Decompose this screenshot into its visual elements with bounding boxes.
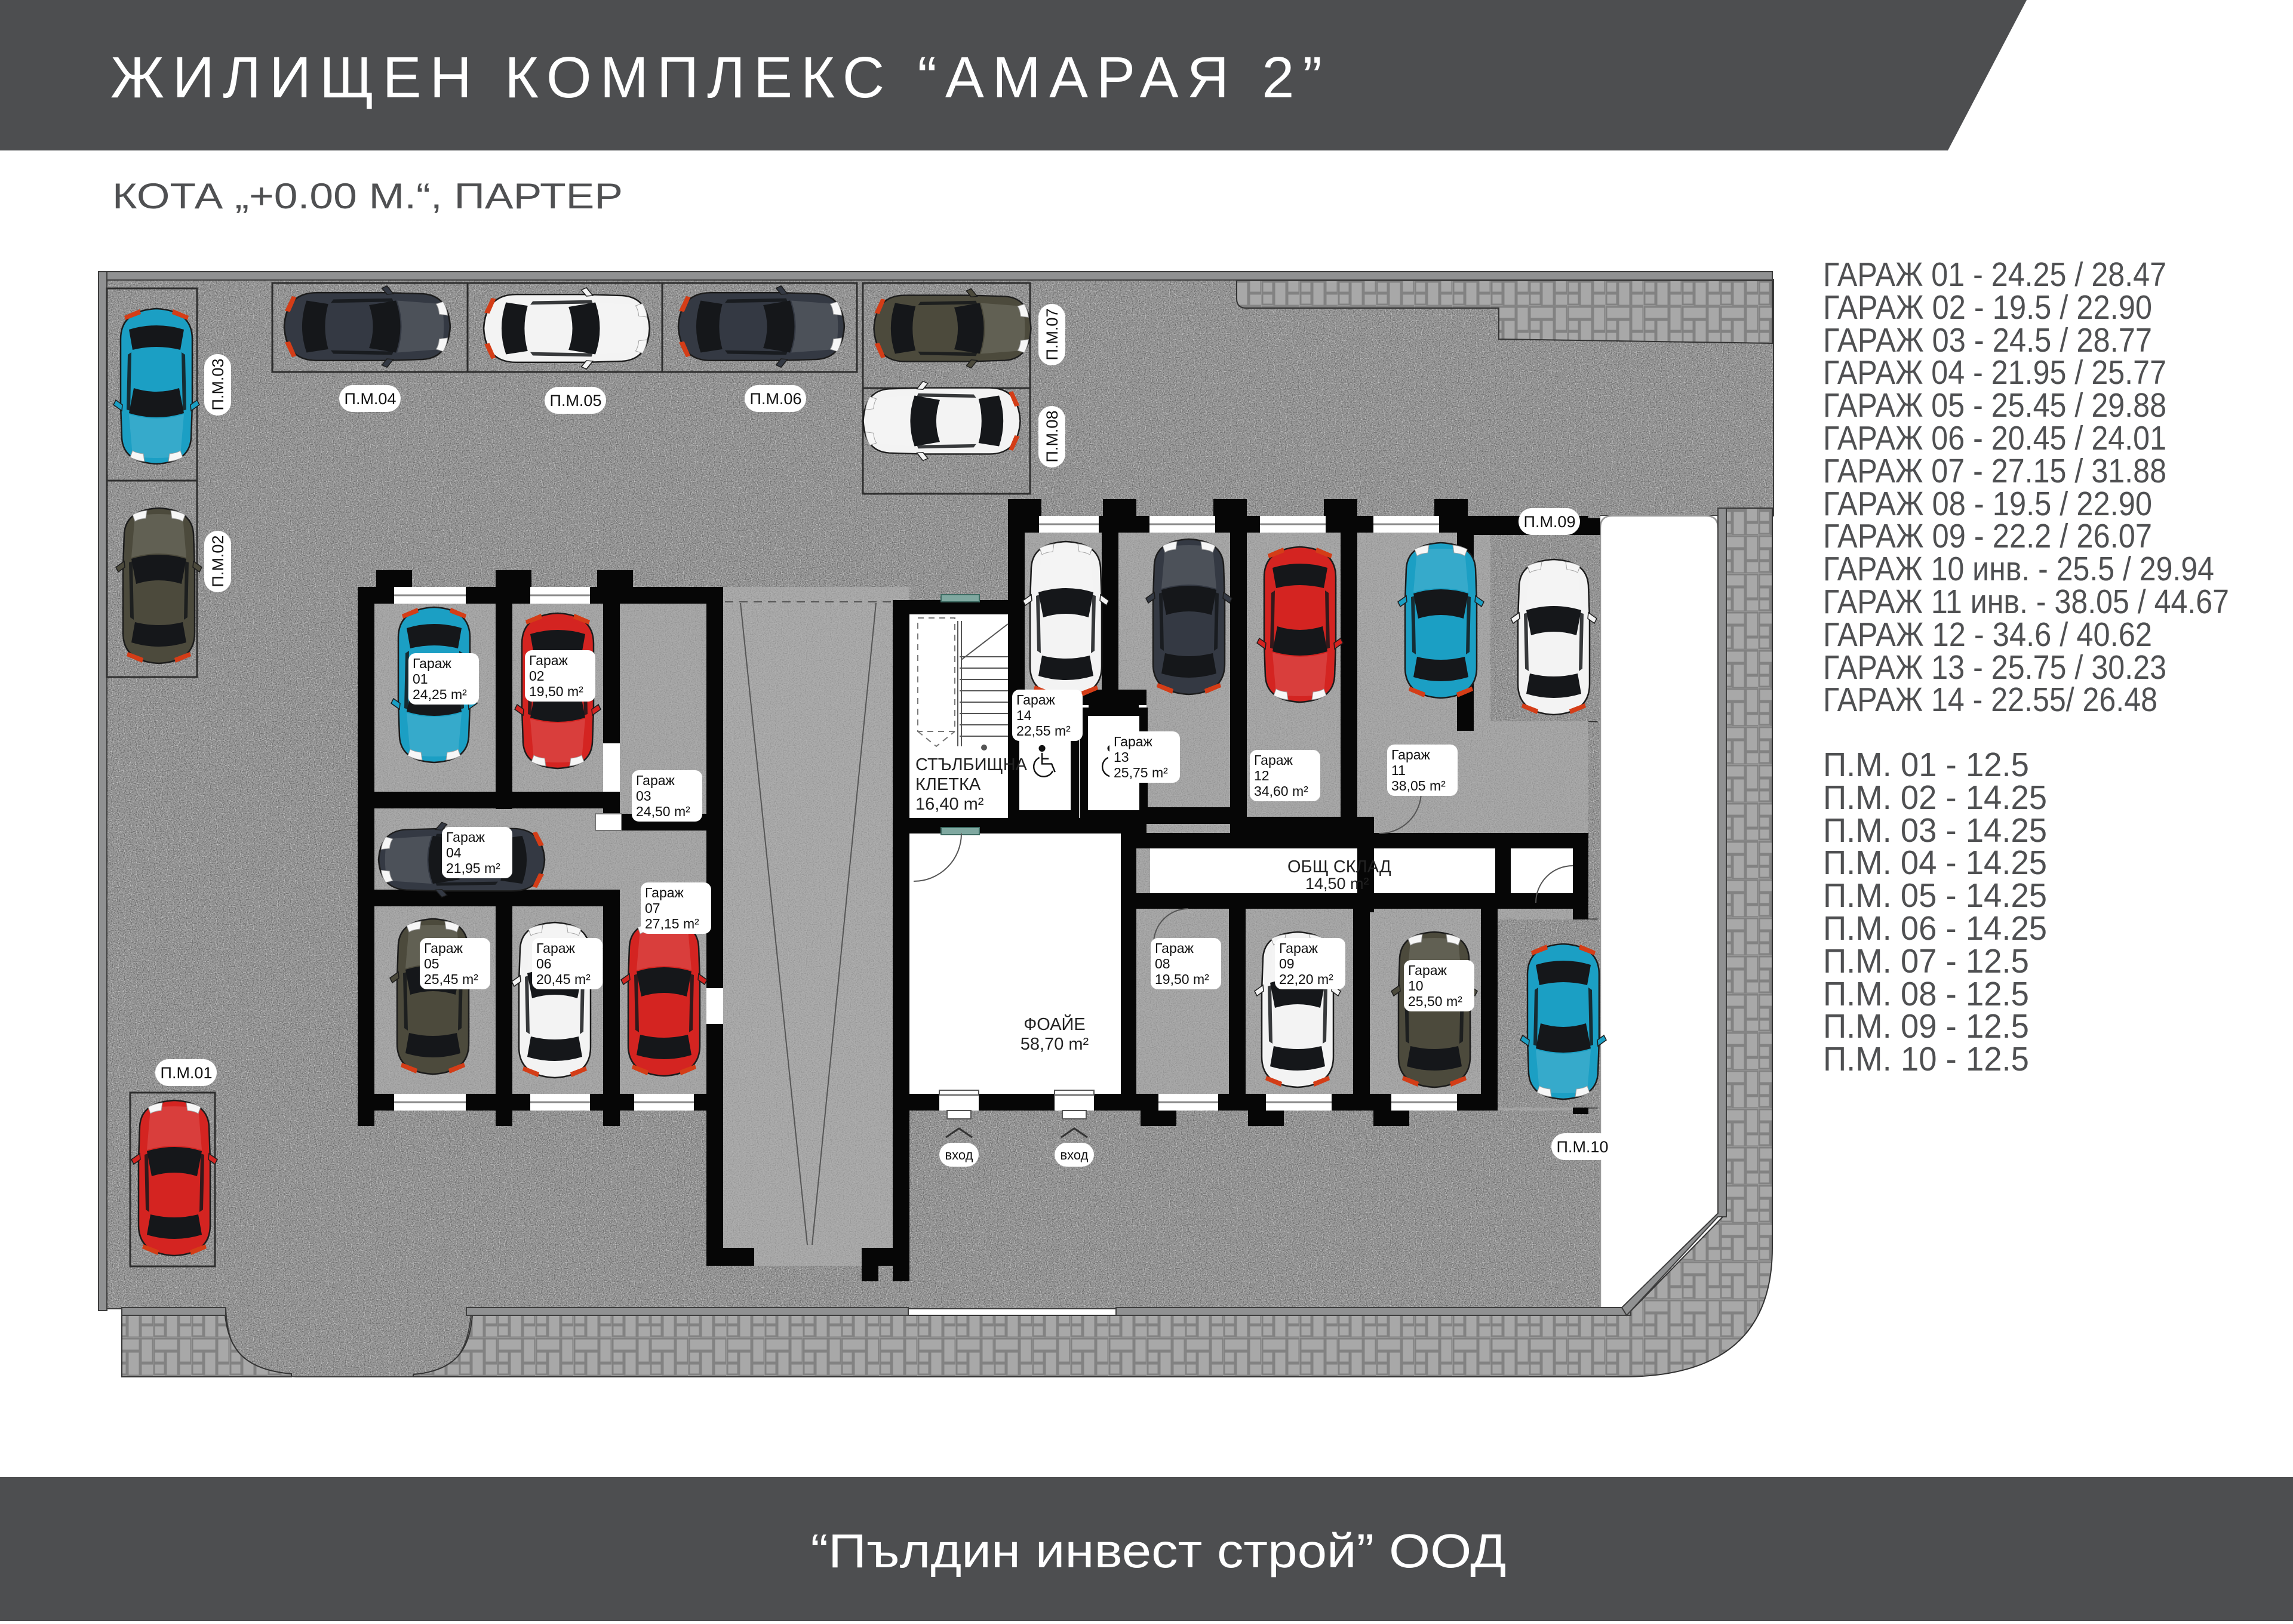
svg-text:Гараж: Гараж xyxy=(1391,747,1431,762)
svg-text:01: 01 xyxy=(413,671,428,687)
svg-text:П.М.01: П.М.01 xyxy=(161,1064,213,1082)
svg-text:14,50 m²: 14,50 m² xyxy=(1305,875,1369,893)
svg-text:Гараж: Гараж xyxy=(1016,692,1056,708)
svg-text:05: 05 xyxy=(424,956,439,971)
svg-text:03: 03 xyxy=(636,788,651,804)
svg-text:Гараж: Гараж xyxy=(1155,940,1194,956)
svg-text:вход: вход xyxy=(1060,1148,1088,1162)
svg-text:25,75 m²: 25,75 m² xyxy=(1114,765,1168,780)
svg-text:14: 14 xyxy=(1016,708,1032,723)
svg-text:Гараж: Гараж xyxy=(636,773,675,788)
svg-text:06: 06 xyxy=(536,956,552,971)
svg-text:ФОАЙЕ: ФОАЙЕ xyxy=(1023,1014,1086,1034)
svg-text:34,60 m²: 34,60 m² xyxy=(1254,783,1308,799)
svg-text:12: 12 xyxy=(1254,768,1270,783)
svg-text:П.М.08: П.М.08 xyxy=(1043,411,1061,463)
svg-text:“Пълдин инвест строй” ООД: “Пълдин инвест строй” ООД xyxy=(811,1524,1507,1577)
svg-text:КЛЕТКА: КЛЕТКА xyxy=(915,775,981,794)
svg-text:08: 08 xyxy=(1155,956,1170,971)
svg-text:24,25 m²: 24,25 m² xyxy=(413,687,467,702)
svg-text:58,70 m²: 58,70 m² xyxy=(1021,1035,1089,1054)
svg-text:19,50 m²: 19,50 m² xyxy=(529,684,583,699)
svg-text:Гараж: Гараж xyxy=(1114,734,1153,749)
svg-text:24,50 m²: 24,50 m² xyxy=(636,804,690,819)
svg-text:Гараж: Гараж xyxy=(446,829,485,845)
svg-text:16,40 m²: 16,40 m² xyxy=(915,795,984,814)
svg-text:38,05 m²: 38,05 m² xyxy=(1391,778,1446,793)
svg-text:04: 04 xyxy=(446,845,462,860)
svg-text:27,15 m²: 27,15 m² xyxy=(645,916,699,931)
svg-text:22,55 m²: 22,55 m² xyxy=(1016,723,1071,739)
svg-text:вход: вход xyxy=(945,1148,973,1162)
svg-text:П.М. 10 - 12.5: П.М. 10 - 12.5 xyxy=(1823,1040,2029,1078)
svg-text:П.М.05: П.М.05 xyxy=(550,392,602,410)
svg-text:КОТА „+0.00 М.“, ПАРТЕР: КОТА „+0.00 М.“, ПАРТЕР xyxy=(112,176,623,216)
svg-text:Гараж: Гараж xyxy=(1254,752,1293,768)
svg-text:П.М.07: П.М.07 xyxy=(1043,309,1061,361)
svg-text:10: 10 xyxy=(1408,978,1424,994)
svg-text:13: 13 xyxy=(1114,749,1129,765)
svg-text:Гараж: Гараж xyxy=(645,885,684,900)
svg-text:П.М.03: П.М.03 xyxy=(209,359,227,411)
svg-text:09: 09 xyxy=(1279,956,1295,971)
svg-text:20,45 m²: 20,45 m² xyxy=(536,971,591,987)
svg-text:22,20 m²: 22,20 m² xyxy=(1279,971,1333,987)
svg-text:25,45 m²: 25,45 m² xyxy=(424,971,478,987)
svg-text:Гараж: Гараж xyxy=(1408,962,1447,978)
svg-text:19,50 m²: 19,50 m² xyxy=(1155,971,1209,987)
svg-text:Гараж: Гараж xyxy=(424,940,463,956)
svg-text:П.М.06: П.М.06 xyxy=(750,390,802,408)
svg-text:Гараж: Гараж xyxy=(1279,940,1318,956)
svg-text:П.М.09: П.М.09 xyxy=(1524,513,1576,531)
svg-text:11: 11 xyxy=(1391,762,1406,778)
svg-text:ОБЩ СКЛАД: ОБЩ СКЛАД xyxy=(1287,857,1391,876)
svg-text:П.М.02: П.М.02 xyxy=(209,536,227,588)
svg-text:21,95 m²: 21,95 m² xyxy=(446,860,500,876)
svg-text:Гараж: Гараж xyxy=(413,656,452,671)
svg-text:СТЪЛБИЩНА: СТЪЛБИЩНА xyxy=(915,755,1028,774)
svg-text:П.М.10: П.М.10 xyxy=(1557,1138,1609,1156)
svg-text:Гараж: Гараж xyxy=(529,653,568,668)
svg-text:07: 07 xyxy=(645,900,660,916)
svg-text:25,50 m²: 25,50 m² xyxy=(1408,994,1462,1009)
svg-text:П.М.04: П.М.04 xyxy=(345,390,396,408)
svg-text:02: 02 xyxy=(529,668,545,684)
svg-text:ЖИЛИЩЕН КОМПЛЕКС “АМАРАЯ 2”: ЖИЛИЩЕН КОМПЛЕКС “АМАРАЯ 2” xyxy=(110,45,1330,110)
svg-text:ГАРАЖ 14 - 22.55/ 26.48: ГАРАЖ 14 - 22.55/ 26.48 xyxy=(1823,681,2157,719)
svg-text:Гараж: Гараж xyxy=(536,940,576,956)
